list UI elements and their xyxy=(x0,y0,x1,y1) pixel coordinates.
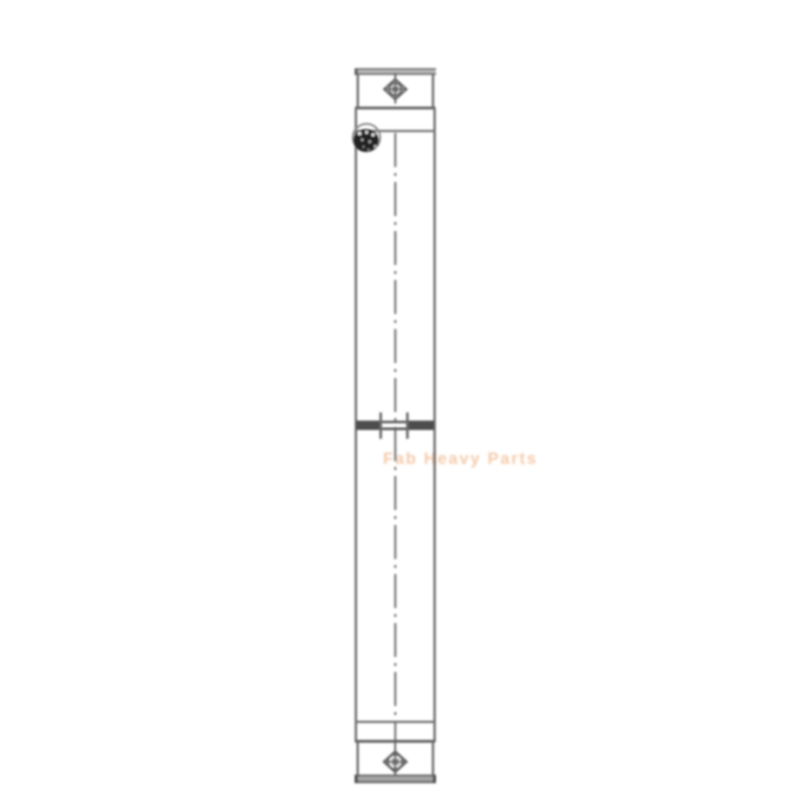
svg-text:Fab Heavy Parts: Fab Heavy Parts xyxy=(383,450,538,468)
